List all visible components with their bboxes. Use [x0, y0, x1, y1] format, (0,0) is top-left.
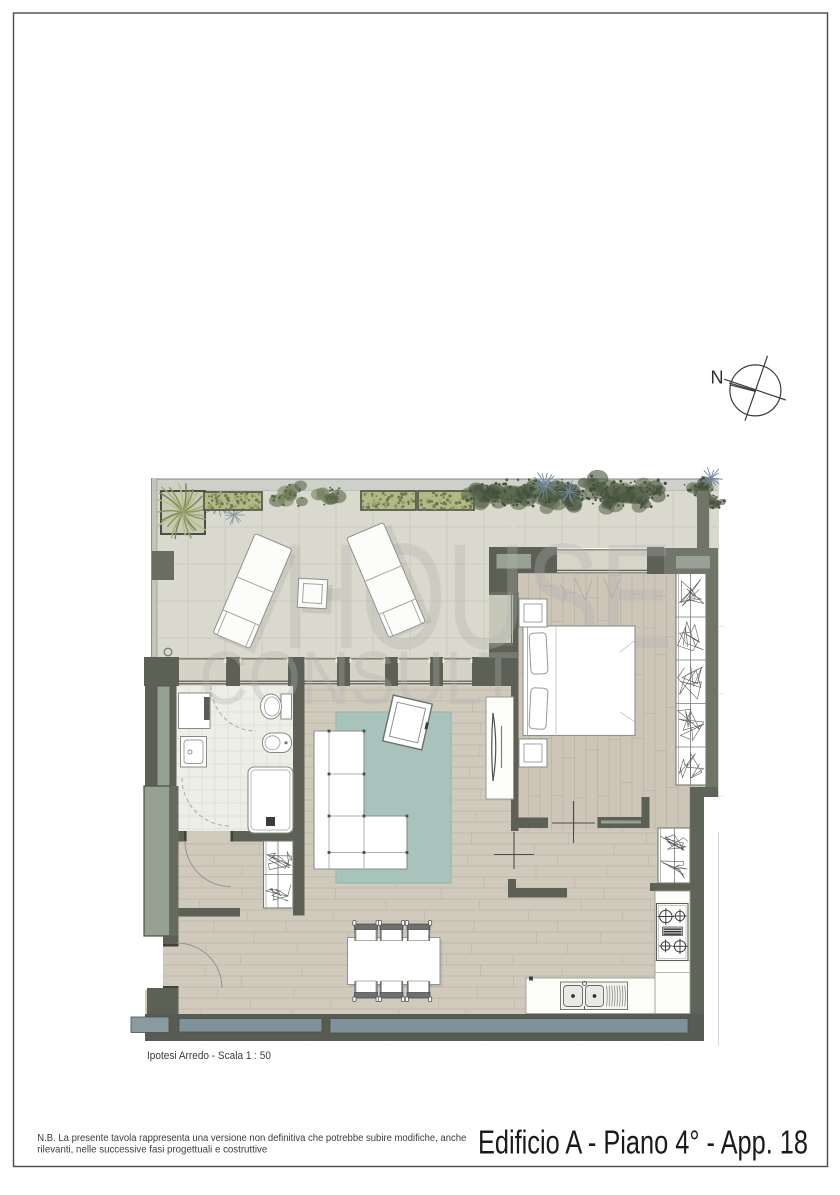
svg-text:Ipotesi Arredo - Scala 1 : 50: Ipotesi Arredo - Scala 1 : 50	[147, 1050, 271, 1062]
svg-text:N: N	[711, 368, 724, 388]
svg-text:N.B. La presente tavola rappre: N.B. La presente tavola rappresenta una …	[37, 1133, 466, 1144]
svg-text:Edificio A - Piano 4° - App. 1: Edificio A - Piano 4° - App. 18	[478, 1124, 808, 1161]
svg-text:rilevanti, nelle successive fa: rilevanti, nelle successive fasi progett…	[37, 1145, 267, 1156]
